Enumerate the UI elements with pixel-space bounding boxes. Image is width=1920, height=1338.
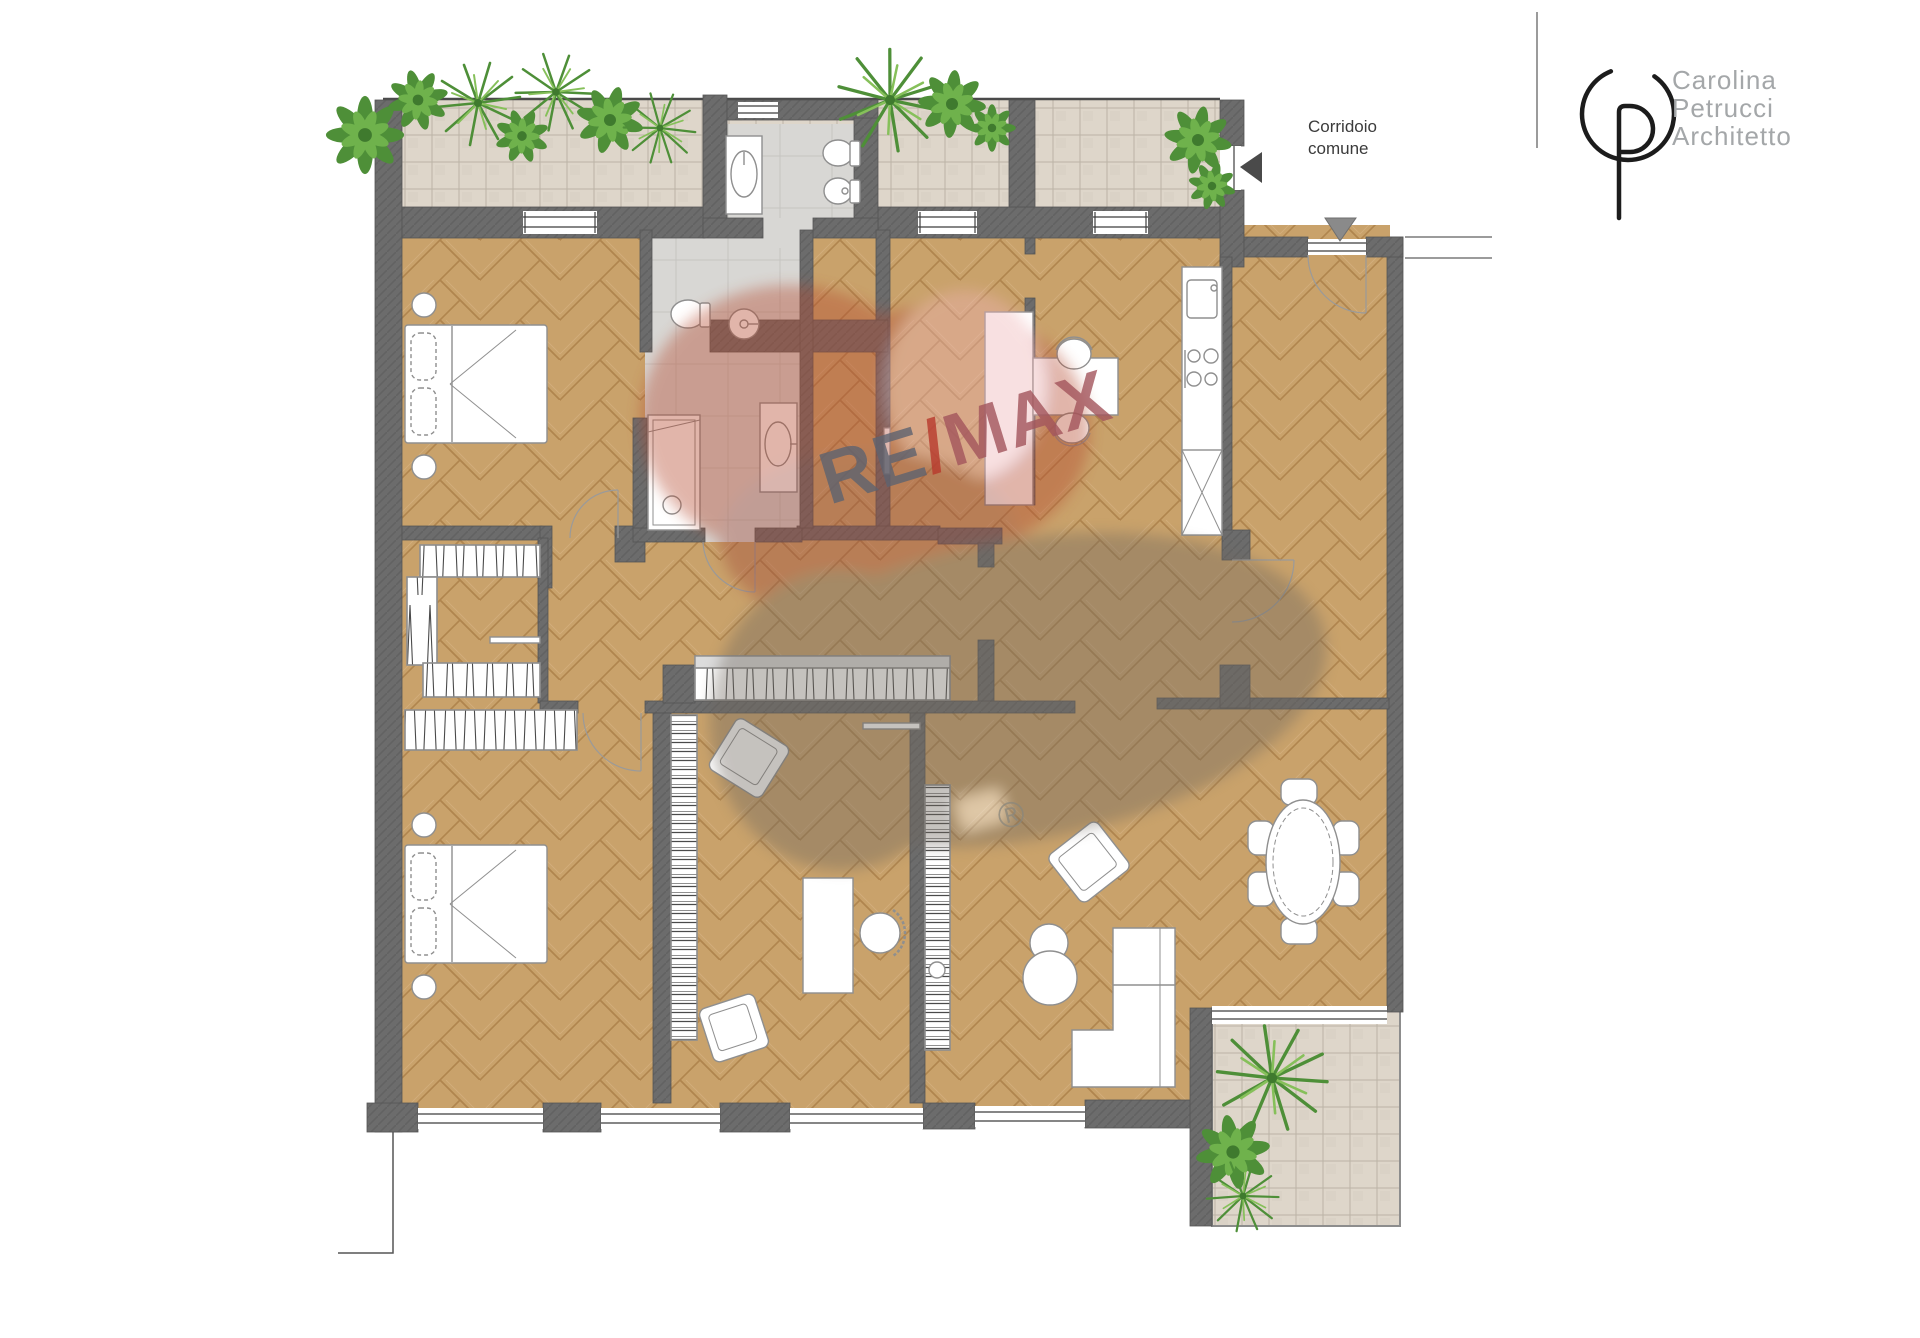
window-study-left xyxy=(918,211,977,234)
architect-name-line3: Architetto xyxy=(1672,122,1792,150)
bidet xyxy=(824,178,860,204)
toilet xyxy=(823,140,860,166)
window-bedroom2-bottom xyxy=(418,1108,543,1129)
wall-right xyxy=(1387,237,1403,1012)
window-room3-left-bottom xyxy=(601,1108,720,1129)
corridor-label: Corridoio comune xyxy=(1308,116,1377,160)
nightstand xyxy=(412,455,436,479)
window-bathroom1 xyxy=(738,102,778,118)
nightstand xyxy=(412,975,436,999)
nightstand xyxy=(412,813,436,837)
architect-name: Carolina Petrucci Architetto xyxy=(1672,66,1792,150)
pouf xyxy=(1023,951,1077,1005)
wardrobe-bedroom2 xyxy=(405,710,577,750)
bed-bedroom1 xyxy=(405,325,547,443)
corridor-label-line1: Corridoio xyxy=(1308,116,1377,138)
floorplan-page: Corridoio comune Carolina Petrucci Archi… xyxy=(0,0,1920,1338)
dining-table xyxy=(1266,800,1340,924)
terrace-corridor-door xyxy=(1230,146,1241,190)
entrance-door xyxy=(1308,239,1366,255)
kitchen-cabinet xyxy=(1182,450,1222,535)
desk xyxy=(803,878,853,993)
architect-name-line2: Petrucci xyxy=(1672,94,1792,122)
window-room3-right-bottom xyxy=(790,1108,923,1129)
kitchen-counter xyxy=(1182,267,1222,535)
kitchen-sink xyxy=(1187,280,1217,318)
wall-left xyxy=(375,100,402,1132)
corridor-entry-arrow-icon xyxy=(1240,152,1262,183)
architect-name-line1: Carolina xyxy=(1672,66,1792,94)
window-living-terrace xyxy=(1212,1006,1387,1024)
corridor-label-line2: comune xyxy=(1308,138,1377,160)
window-study-right xyxy=(1093,211,1148,234)
architect-logo: Carolina Petrucci Architetto xyxy=(1578,52,1908,232)
nightstand xyxy=(412,293,436,317)
window-bedroom1-top xyxy=(523,211,597,234)
window-room4-bottom xyxy=(975,1106,1085,1127)
bed-bedroom2 xyxy=(405,845,547,963)
